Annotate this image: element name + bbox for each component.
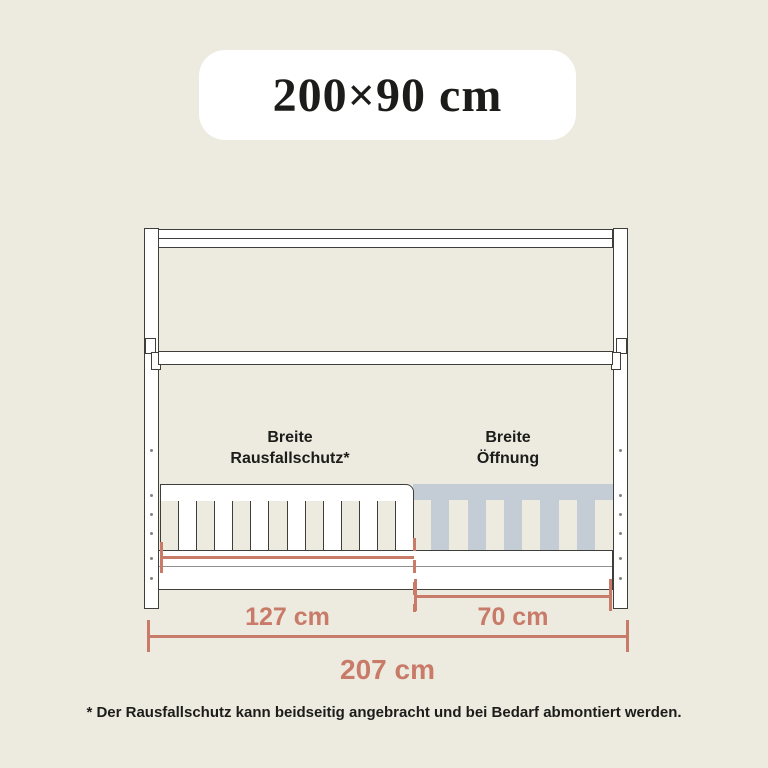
- headboard-top-rails: [158, 229, 613, 248]
- ghost-rail-slat: [413, 500, 431, 550]
- screw-hole-dot: [619, 577, 622, 580]
- screw-hole-dot: [619, 557, 622, 560]
- screw-hole-dot: [619, 513, 622, 516]
- guard-rail-top-bar: [160, 484, 414, 502]
- guard-rail-slat: [161, 501, 178, 550]
- guard-rail-slats: [160, 501, 414, 550]
- rail-width-label-line1: Breite: [170, 427, 410, 448]
- dimension-label-total: 207 cm: [148, 654, 627, 686]
- screw-hole-dot: [150, 532, 153, 535]
- guard-rail-slat: [214, 501, 232, 550]
- dimension-label-rail: 127 cm: [161, 603, 414, 632]
- guard-rail-slat: [341, 501, 359, 550]
- ghost-rail-slat: [559, 500, 577, 550]
- screw-hole-dot: [150, 557, 153, 560]
- guard-rail-slat: [359, 501, 377, 550]
- ghost-rail-slats: [413, 500, 613, 550]
- screw-hole-dot: [619, 449, 622, 452]
- ghost-rail-slat: [595, 500, 613, 550]
- guard-rail-slat: [287, 501, 305, 550]
- guard-rail-slat: [178, 501, 196, 550]
- guard-rail-slat: [232, 501, 250, 550]
- ghost-rail-slat: [431, 500, 449, 550]
- ghost-rail-top-bar: [413, 484, 613, 500]
- opening-width-label-line2: Öffnung: [408, 448, 608, 469]
- guard-rail-slat: [377, 501, 395, 550]
- ghost-rail-slat: [522, 500, 540, 550]
- dimension-tick-rail-left: [160, 542, 163, 573]
- screw-hole-dot: [150, 494, 153, 497]
- opening-width-label-line1: Breite: [408, 427, 608, 448]
- bed-size-infographic: 200×90 cm Breite Rausfall: [0, 0, 768, 768]
- screw-hole-dot: [619, 494, 622, 497]
- headboard-rail-divider: [159, 238, 612, 239]
- dimension-tick-total-right: [626, 620, 629, 652]
- ghost-rail-slat: [540, 500, 558, 550]
- dimension-label-opening: 70 cm: [415, 603, 611, 632]
- bed-base-divider: [159, 566, 612, 567]
- dimension-line-opening: [415, 595, 611, 598]
- right-post: [613, 228, 628, 609]
- size-badge: 200×90 cm: [199, 50, 576, 140]
- size-badge-text: 200×90 cm: [273, 68, 503, 123]
- ghost-rail-slat: [449, 500, 467, 550]
- footnote: * Der Rausfallschutz kann beidseitig ang…: [20, 704, 748, 721]
- middle-rail: [158, 351, 613, 365]
- ghost-rail-slat: [504, 500, 522, 550]
- dimension-tick-total-left: [147, 620, 150, 652]
- guard-rail-slat: [395, 501, 413, 550]
- guard-rail-slat: [250, 501, 268, 550]
- ghost-rail-slat: [468, 500, 486, 550]
- guard-rail-slat: [323, 501, 341, 550]
- screw-hole-dot: [150, 577, 153, 580]
- dimension-line-total: [148, 635, 627, 638]
- guard-rail-slat: [196, 501, 214, 550]
- dimension-line-rail: [161, 556, 414, 559]
- ghost-rail-slat: [577, 500, 595, 550]
- guard-rail-slat: [268, 501, 286, 550]
- opening-width-label: Breite Öffnung: [408, 427, 608, 469]
- screw-hole-dot: [619, 532, 622, 535]
- left-post: [144, 228, 159, 609]
- rail-width-label: Breite Rausfallschutz*: [170, 427, 410, 469]
- screw-hole-dot: [150, 513, 153, 516]
- screw-hole-dot: [150, 449, 153, 452]
- guard-rail-slat: [305, 501, 323, 550]
- ghost-rail-slat: [486, 500, 504, 550]
- rail-width-label-line2: Rausfallschutz*: [170, 448, 410, 469]
